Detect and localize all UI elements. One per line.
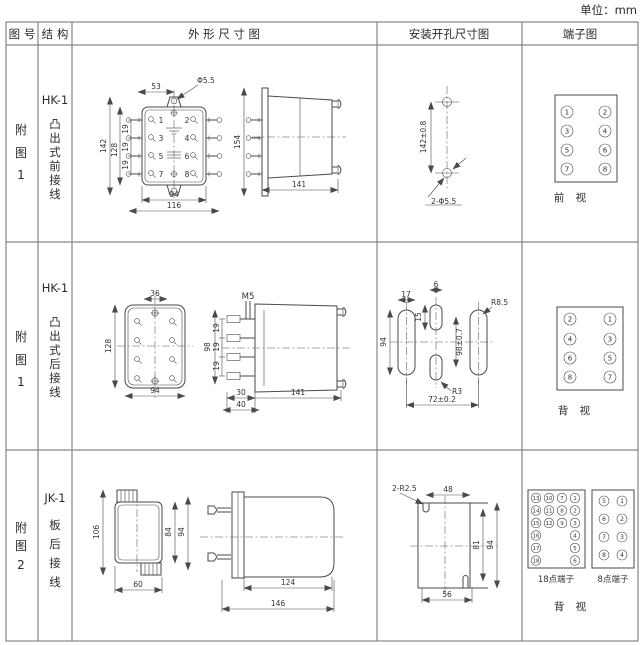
- dim-label: 81: [472, 540, 481, 550]
- row2-structure-label: HK-1 凸 出 式 后 接 线: [42, 281, 68, 399]
- desc-char: 线: [49, 187, 61, 201]
- dim-label: 19: [212, 342, 221, 352]
- dim-label: 36: [150, 289, 160, 298]
- dim-label: 48: [443, 485, 453, 494]
- terminal-num: 9: [560, 521, 564, 527]
- desc-char: 凸: [49, 117, 61, 131]
- desc-char: 线: [49, 385, 61, 399]
- terminal-num: 1: [608, 316, 612, 324]
- desc-char: 线: [49, 575, 61, 589]
- dim-label: R8.5: [491, 298, 508, 307]
- row3-mounting-diagram: 48 2-R2.5 81 94 56: [392, 484, 500, 603]
- col-header-terminal: 端子图: [563, 27, 598, 41]
- terminal-num: 3: [608, 336, 612, 344]
- terminal-num: 6: [603, 147, 608, 155]
- row1-fig-label: 附 图 1: [15, 123, 27, 182]
- row2-fig-label: 附 图 1: [15, 330, 27, 389]
- dim-label: 17: [401, 290, 411, 299]
- dim-label: 15: [414, 312, 423, 322]
- desc-char: 板: [49, 518, 61, 532]
- terminal-num: 5: [159, 152, 164, 161]
- desc-char: 式: [49, 145, 61, 159]
- row1-mounting-diagram: 142±0.8 2-Φ5.5: [419, 86, 466, 206]
- terminal-num: 6: [573, 559, 577, 565]
- terminal-block-label: 18点端子: [538, 574, 575, 585]
- terminal-num: 7: [560, 496, 564, 502]
- row3-outline-side-view: 124 146: [200, 492, 344, 612]
- dim-label: 94: [486, 540, 495, 550]
- dim-label: 60: [133, 580, 143, 589]
- row1-terminal-diagram: 1 2 3 4 5 6 7 8 前 视: [554, 95, 617, 204]
- dim-label: 142: [99, 139, 108, 154]
- terminal-num: 6: [185, 152, 190, 161]
- dim-label: 2-Φ5.5: [431, 197, 457, 206]
- terminal-num: 8: [602, 552, 606, 559]
- dim-label: 94: [177, 527, 186, 537]
- terminal-num: 1: [620, 498, 624, 505]
- desc-char: 式: [49, 343, 61, 357]
- dim-label: Φ5.5: [197, 76, 215, 85]
- dim-label: 53: [151, 82, 161, 91]
- dim-label: 6: [434, 280, 439, 289]
- terminal-num: 8: [603, 166, 607, 174]
- dim-label: 19: [212, 361, 221, 371]
- fig-char: 图: [15, 146, 27, 160]
- terminal-num: 4: [603, 128, 608, 136]
- dim-label: 94: [379, 337, 388, 347]
- dim-label: 94: [150, 386, 160, 395]
- row2-outline-front-view: 36 128 94: [104, 289, 193, 398]
- row3-outline-front-view: 106 84 94 60: [92, 490, 188, 593]
- dim-label: 19: [121, 142, 130, 152]
- terminal-num: 2: [620, 516, 624, 523]
- desc-char: 出: [49, 131, 61, 145]
- fig-char: 2: [17, 558, 25, 572]
- terminal-num: 14: [533, 509, 540, 515]
- fig-char: 图: [15, 539, 27, 553]
- unit-label: 单位：mm: [580, 3, 637, 17]
- terminal-num: 4: [620, 552, 624, 559]
- drawing-sheet: 单位：mm 图 号 结 构 外 形 尺 寸 图 安装开孔尺寸图 端子图 附 图 …: [0, 0, 644, 645]
- terminal-num: 12: [546, 521, 553, 527]
- dim-label: 40: [236, 400, 246, 409]
- terminal-num: 5: [565, 147, 569, 155]
- col-header-outline: 外 形 尺 寸 图: [188, 27, 260, 41]
- terminal-num: 1: [573, 496, 577, 502]
- terminal-num: 3: [159, 134, 164, 143]
- row2-terminal-diagram: 2 1 4 3 6 5 8 7 背 视: [557, 307, 623, 417]
- desc-char: 凸: [49, 315, 61, 329]
- fig-char: 附: [15, 330, 27, 344]
- fig-char: 1: [17, 375, 25, 389]
- dim-label: 19: [212, 323, 221, 333]
- row3-structure-label: JK-1 板 后 接 线: [43, 491, 65, 589]
- view-label: 前 视: [554, 191, 590, 204]
- row2-outline-side-view: M5 98 19 19 19 30 40 141: [203, 292, 350, 413]
- row3-terminal-8pt: 5 1 6 2 7 3 8 4 8点端子: [592, 490, 634, 585]
- terminal-num: 5: [573, 546, 577, 552]
- terminal-num: 8: [568, 374, 572, 382]
- terminal-num: 1: [565, 109, 569, 117]
- terminal-num: 8: [185, 170, 190, 179]
- terminal-num: 7: [565, 166, 569, 174]
- table-grid: [6, 22, 638, 641]
- table-header: 图 号 结 构 外 形 尺 寸 图 安装开孔尺寸图 端子图: [9, 27, 598, 41]
- desc-char: 出: [49, 329, 61, 343]
- terminal-num: 2: [568, 316, 572, 324]
- terminal-num: 2: [185, 116, 190, 125]
- terminal-num: 5: [602, 498, 606, 505]
- terminal-num: 15: [533, 521, 540, 527]
- terminal-num: 7: [159, 170, 164, 179]
- dim-label: 19: [121, 124, 130, 134]
- dim-label: 124: [281, 578, 296, 587]
- terminal-num: 4: [185, 134, 190, 143]
- terminal-num: 2: [573, 509, 577, 515]
- col-header-fig-no: 图 号: [9, 27, 36, 41]
- terminal-num: 8: [560, 509, 564, 515]
- dim-label: 19: [121, 160, 130, 170]
- terminal-num: 6: [602, 516, 606, 523]
- terminal-num: 18: [533, 559, 540, 565]
- dim-label: 116: [167, 201, 182, 210]
- terminal-num: 17: [533, 546, 540, 552]
- terminal-num: 3: [565, 128, 569, 136]
- dim-label: 141: [292, 180, 307, 189]
- terminal-num: 7: [608, 374, 612, 382]
- fig-char: 1: [17, 168, 25, 182]
- row1-outline-front-view: 1 2 3 4 5 6 7 8 53 Φ5.5 142 128 19 19 19…: [99, 76, 222, 211]
- terminal-num: 2: [603, 109, 607, 117]
- terminal-num: 7: [602, 534, 606, 541]
- desc-char: 后: [49, 357, 61, 371]
- fig-char: 附: [15, 521, 27, 535]
- terminal-num: 13: [533, 496, 540, 502]
- model-label: HK-1: [42, 281, 68, 295]
- row1-structure-label: HK-1 凸 出 式 前 接 线: [42, 93, 68, 201]
- dim-label: 146: [271, 599, 286, 608]
- row3-terminal-18pt: 13 10 7 1 14 11 8 2 15 12 9 3 16 4 17 5 …: [528, 490, 585, 585]
- dim-label: 142±0.8: [419, 121, 428, 154]
- technical-drawing-page: 单位：mm 图 号 结 构 外 形 尺 寸 图 安装开孔尺寸图 端子图 附 图 …: [0, 0, 644, 645]
- terminal-num: 4: [573, 534, 577, 540]
- fig-char: 附: [15, 123, 27, 137]
- desc-char: 后: [49, 537, 61, 551]
- dim-label: 98: [203, 342, 212, 352]
- dim-label: 30: [236, 388, 246, 397]
- fig-char: 图: [15, 353, 27, 367]
- desc-char: 接: [49, 173, 61, 187]
- model-label: JK-1: [43, 491, 65, 505]
- dim-label: M5: [242, 292, 255, 302]
- dim-label: 56: [442, 590, 452, 599]
- terminal-num: 10: [546, 496, 553, 502]
- terminal-block-label: 8点端子: [598, 574, 629, 585]
- dim-label: 154: [233, 135, 242, 150]
- terminal-num: 16: [533, 534, 540, 540]
- row2-mounting-diagram: 17 6 15 94 98±0.7 R8.5 R3 72±0.2: [379, 280, 508, 408]
- terminal-num: 1: [159, 116, 164, 125]
- dim-label: 84: [164, 527, 173, 537]
- dim-label: 98±0.7: [455, 328, 464, 356]
- terminal-num: 11: [546, 509, 553, 515]
- terminal-num: 3: [620, 534, 624, 541]
- dim-label: 128: [110, 143, 119, 158]
- terminal-num: 5: [608, 355, 612, 363]
- row3-fig-label: 附 图 2: [15, 521, 27, 572]
- desc-char: 接: [49, 371, 61, 385]
- col-header-structure: 结 构: [42, 27, 69, 41]
- row1-outline-side-view: 154 141: [233, 88, 346, 196]
- view-label: 背 视: [554, 600, 590, 613]
- terminal-num: 6: [568, 355, 573, 363]
- model-label: HK-1: [42, 93, 68, 107]
- dim-label: 128: [104, 339, 113, 354]
- view-label: 背 视: [558, 404, 594, 417]
- terminal-num: 3: [573, 521, 577, 527]
- desc-char: 前: [49, 159, 61, 173]
- dim-label: 106: [92, 525, 101, 540]
- dim-label: 2-R2.5: [392, 484, 417, 493]
- dim-label: 94: [169, 190, 179, 199]
- desc-char: 接: [49, 556, 61, 570]
- dim-label: 141: [291, 388, 306, 397]
- dim-label: 72±0.2: [428, 395, 456, 404]
- terminal-num: 4: [568, 336, 573, 344]
- col-header-mounting: 安装开孔尺寸图: [409, 27, 490, 41]
